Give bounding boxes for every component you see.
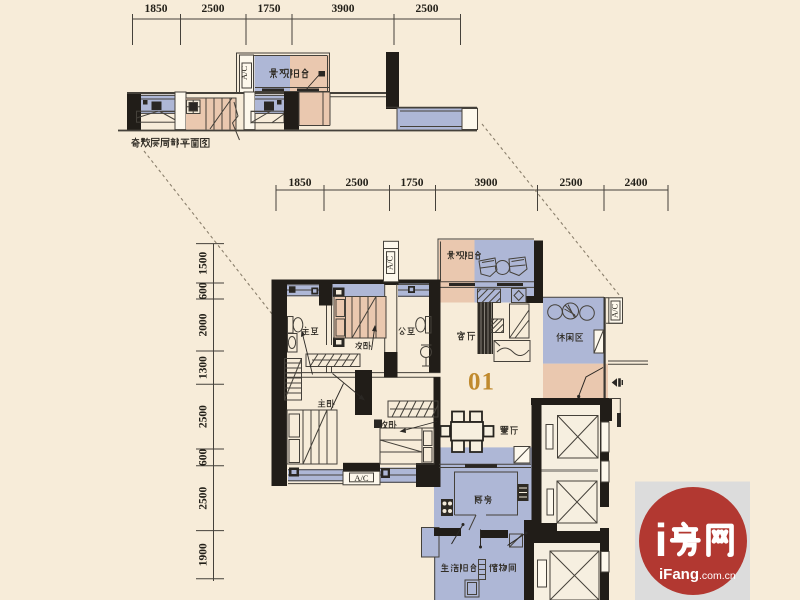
svg-text:600: 600 bbox=[198, 282, 210, 300]
svg-text:1500: 1500 bbox=[198, 252, 210, 275]
svg-text:A/C: A/C bbox=[239, 66, 249, 81]
svg-text:2500: 2500 bbox=[198, 486, 210, 509]
svg-text:2500: 2500 bbox=[560, 177, 583, 189]
svg-text:A/C: A/C bbox=[385, 256, 395, 271]
svg-text:1300: 1300 bbox=[198, 356, 210, 379]
svg-text:3900: 3900 bbox=[332, 3, 355, 15]
svg-text:600: 600 bbox=[198, 449, 210, 467]
svg-text:i: i bbox=[655, 514, 668, 566]
svg-text:A/C: A/C bbox=[610, 304, 620, 319]
svg-text:2500: 2500 bbox=[346, 177, 369, 189]
svg-text:1850: 1850 bbox=[145, 3, 168, 15]
svg-text:1750: 1750 bbox=[258, 3, 281, 15]
svg-text:1900: 1900 bbox=[198, 543, 210, 566]
svg-text:2500: 2500 bbox=[416, 3, 439, 15]
svg-text:01: 01 bbox=[468, 369, 495, 396]
svg-text:3900: 3900 bbox=[475, 177, 498, 189]
svg-text:A/C: A/C bbox=[354, 473, 369, 483]
svg-text:2000: 2000 bbox=[198, 313, 210, 336]
svg-text:1850: 1850 bbox=[289, 177, 312, 189]
svg-text:2500: 2500 bbox=[202, 3, 225, 15]
svg-text:2500: 2500 bbox=[198, 405, 210, 428]
svg-text:1750: 1750 bbox=[401, 177, 424, 189]
svg-text:2400: 2400 bbox=[625, 177, 648, 189]
